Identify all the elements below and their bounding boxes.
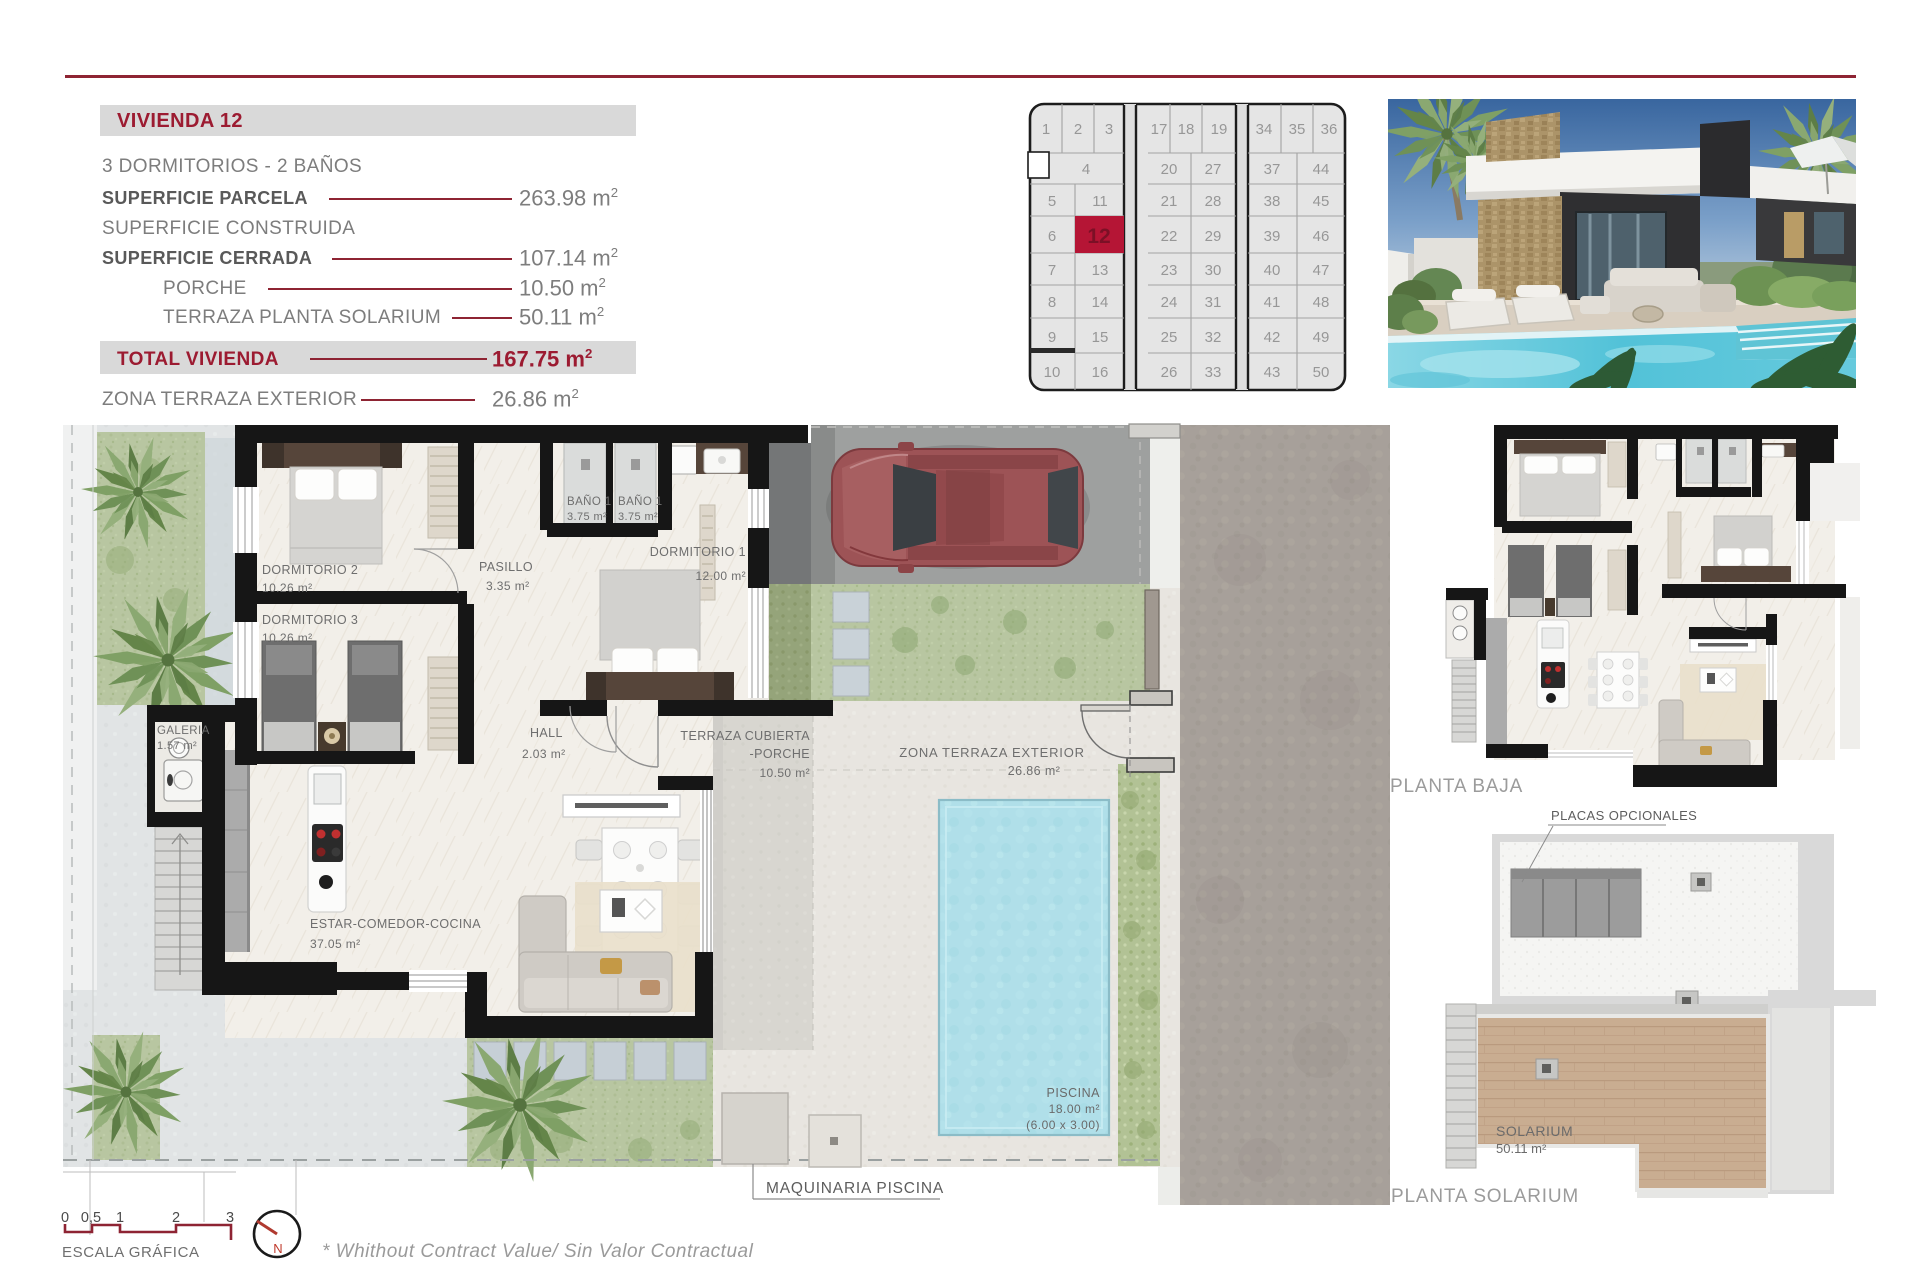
svg-text:49: 49 [1313, 329, 1330, 346]
svg-text:17: 17 [1151, 121, 1168, 138]
svg-text:22: 22 [1161, 228, 1178, 245]
svg-text:45: 45 [1313, 193, 1330, 210]
svg-text:12: 12 [1087, 225, 1110, 248]
svg-text:PLANTA BAJA: PLANTA BAJA [1390, 776, 1523, 797]
svg-text:SOLARIUM: SOLARIUM [1496, 1123, 1573, 1139]
svg-text:3.35 m²: 3.35 m² [486, 579, 529, 593]
svg-text:ESTAR-COMEDOR-COCINA: ESTAR-COMEDOR-COCINA [310, 917, 481, 931]
svg-text:4: 4 [1082, 161, 1090, 178]
svg-text:10: 10 [1044, 364, 1061, 381]
svg-text:MAQUINARIA PISCINA: MAQUINARIA PISCINA [766, 1180, 944, 1197]
svg-text:PLACAS OPCIONALES: PLACAS OPCIONALES [1551, 808, 1697, 823]
svg-text:2.03 m²: 2.03 m² [522, 747, 565, 761]
svg-text:18: 18 [1178, 121, 1195, 138]
svg-text:PISCINA: PISCINA [1046, 1086, 1100, 1100]
svg-text:10.26 m²: 10.26 m² [262, 631, 313, 645]
svg-text:42: 42 [1264, 329, 1281, 346]
svg-text:48: 48 [1313, 294, 1330, 311]
svg-text:24: 24 [1161, 294, 1178, 311]
svg-text:37.05 m²: 37.05 m² [310, 937, 361, 951]
svg-text:(6.00 x 3.00): (6.00 x 3.00) [1026, 1118, 1100, 1132]
svg-text:* Whithout Contract Value/ Si: * Whithout Contract Value/ Sin Valor Con… [322, 1241, 754, 1262]
svg-text:46: 46 [1313, 228, 1330, 245]
svg-text:15: 15 [1092, 329, 1109, 346]
svg-text:DORMITORIO 2: DORMITORIO 2 [262, 563, 358, 577]
svg-text:14: 14 [1092, 294, 1109, 311]
svg-text:50.11 m²: 50.11 m² [1496, 1141, 1547, 1156]
svg-text:26.86 m²: 26.86 m² [1008, 764, 1061, 778]
svg-text:11: 11 [1092, 193, 1108, 210]
svg-text:30: 30 [1205, 262, 1222, 279]
svg-text:33: 33 [1205, 364, 1222, 381]
svg-text:TERRAZA CUBIERTA: TERRAZA CUBIERTA [680, 729, 810, 743]
svg-text:1.57 m²: 1.57 m² [157, 740, 197, 752]
svg-text:23: 23 [1161, 262, 1178, 279]
svg-text:19: 19 [1211, 121, 1228, 138]
svg-text:ESCALA GRÁFICA: ESCALA GRÁFICA [62, 1244, 200, 1261]
svg-text:0,5: 0,5 [81, 1210, 101, 1226]
svg-text:N: N [273, 1241, 282, 1256]
svg-text:10.50 m²: 10.50 m² [759, 766, 810, 780]
svg-text:29: 29 [1205, 228, 1222, 245]
svg-text:31: 31 [1205, 294, 1222, 311]
svg-text:5: 5 [1048, 193, 1056, 210]
svg-text:47: 47 [1313, 262, 1330, 279]
svg-text:16: 16 [1092, 364, 1109, 381]
svg-text:DORMITORIO 1: DORMITORIO 1 [650, 545, 746, 559]
svg-text:50: 50 [1313, 364, 1330, 381]
svg-text:1: 1 [1042, 121, 1050, 138]
svg-text:BAÑO 1: BAÑO 1 [618, 495, 663, 508]
svg-text:DORMITORIO 3: DORMITORIO 3 [262, 613, 358, 627]
svg-text:7: 7 [1048, 262, 1056, 279]
svg-text:20: 20 [1161, 161, 1178, 178]
svg-text:8: 8 [1048, 294, 1056, 311]
svg-text:12.00 m²: 12.00 m² [695, 569, 746, 583]
svg-text:PLANTA SOLARIUM: PLANTA SOLARIUM [1391, 1186, 1579, 1207]
svg-text:9: 9 [1048, 329, 1056, 346]
svg-text:43: 43 [1264, 364, 1281, 381]
svg-text:35: 35 [1289, 121, 1306, 138]
svg-text:26: 26 [1161, 364, 1178, 381]
svg-text:25: 25 [1161, 329, 1178, 346]
svg-text:13: 13 [1092, 262, 1109, 279]
svg-text:40: 40 [1264, 262, 1281, 279]
svg-text:3: 3 [226, 1210, 234, 1226]
svg-text:HALL: HALL [530, 726, 563, 740]
svg-text:BAÑO 1: BAÑO 1 [567, 495, 612, 508]
svg-text:2: 2 [172, 1210, 180, 1226]
svg-text:-PORCHE: -PORCHE [750, 747, 810, 761]
svg-text:39: 39 [1264, 228, 1281, 245]
svg-text:37: 37 [1264, 161, 1281, 178]
svg-text:36: 36 [1321, 121, 1338, 138]
svg-text:10.26 m²: 10.26 m² [262, 581, 313, 595]
svg-text:38: 38 [1264, 193, 1281, 210]
svg-text:32: 32 [1205, 329, 1222, 346]
svg-text:GALERIA: GALERIA [157, 725, 210, 737]
svg-text:6: 6 [1048, 228, 1056, 245]
svg-text:3.75 m²: 3.75 m² [567, 511, 607, 523]
svg-text:21: 21 [1161, 193, 1178, 210]
svg-text:1: 1 [116, 1210, 124, 1226]
svg-text:28: 28 [1205, 193, 1222, 210]
svg-text:3: 3 [1105, 121, 1113, 138]
svg-text:27: 27 [1205, 161, 1222, 178]
svg-text:41: 41 [1264, 294, 1281, 311]
svg-text:18.00 m²: 18.00 m² [1049, 1102, 1100, 1116]
svg-text:44: 44 [1313, 161, 1330, 178]
svg-text:2: 2 [1074, 121, 1082, 138]
svg-text:3.75 m²: 3.75 m² [618, 511, 658, 523]
svg-text:34: 34 [1256, 121, 1273, 138]
svg-text:ZONA TERRAZA EXTERIOR: ZONA TERRAZA EXTERIOR [899, 745, 1085, 760]
svg-text:PASILLO: PASILLO [479, 560, 533, 574]
svg-text:0: 0 [61, 1210, 69, 1226]
